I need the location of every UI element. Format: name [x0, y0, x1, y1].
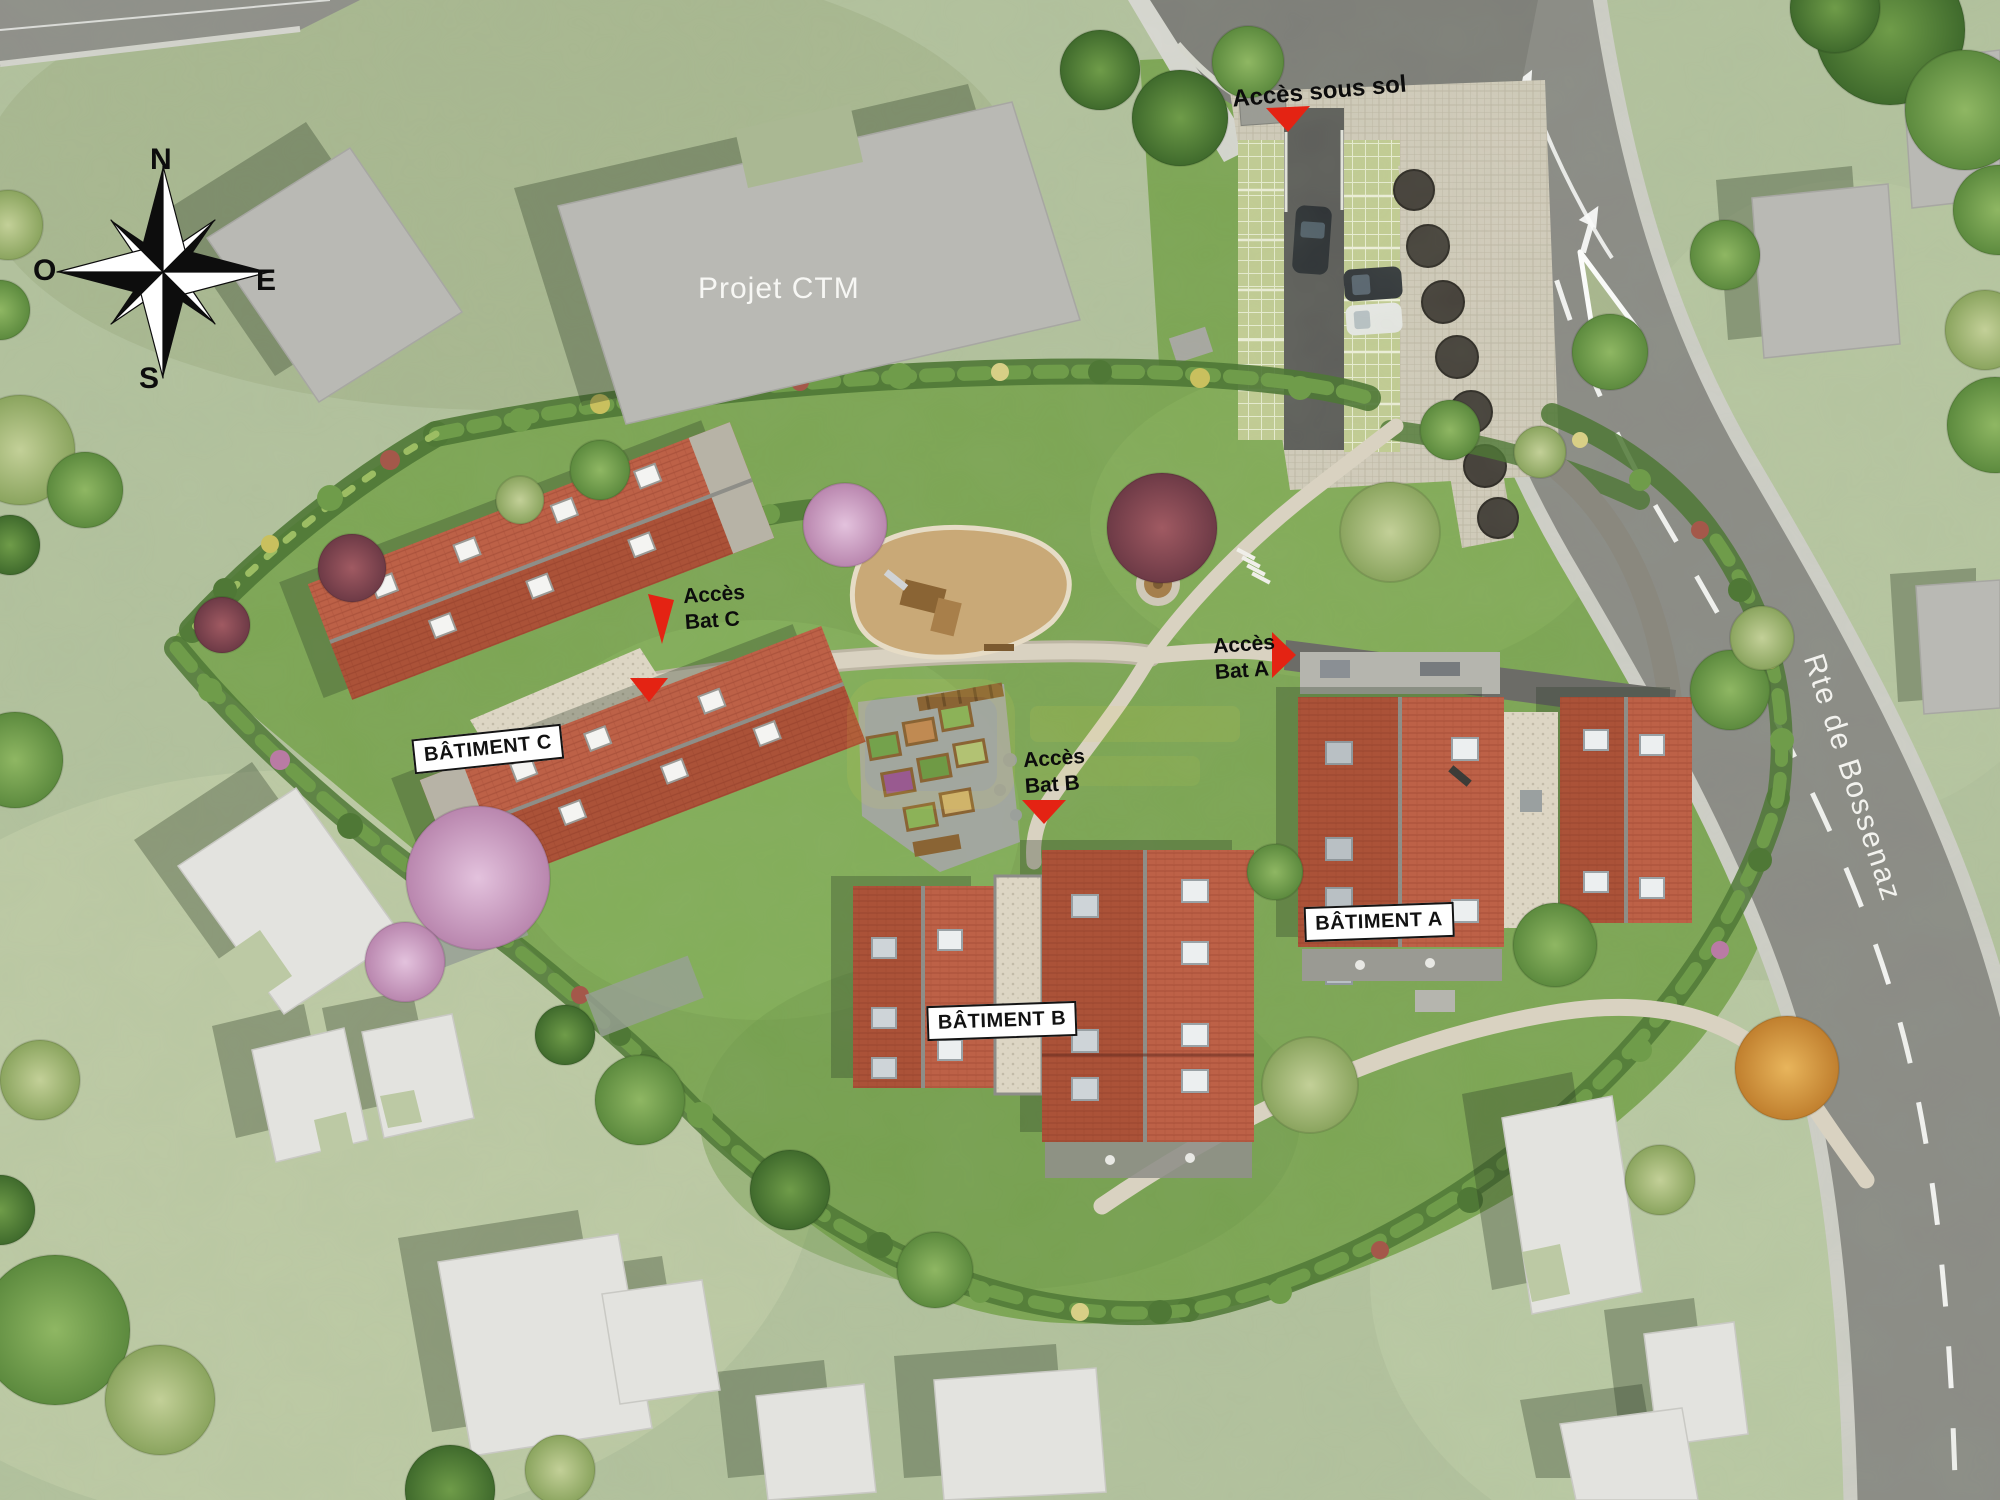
neighbor-building [1560, 1408, 1698, 1500]
neighbor-building [756, 1384, 876, 1500]
neighbor-building [602, 1280, 720, 1404]
tree-purple [1107, 473, 1217, 583]
tree-orange [1735, 1016, 1839, 1120]
neighbor-building [934, 1368, 1106, 1500]
neighbor-building [1916, 580, 2000, 714]
site-plan-rendering [0, 0, 2000, 1500]
tree-pink [803, 483, 887, 567]
neighbor-building [1752, 184, 1900, 358]
site-plan: N O E S Projet CTM Accès sous sol Accès … [0, 0, 2000, 1500]
